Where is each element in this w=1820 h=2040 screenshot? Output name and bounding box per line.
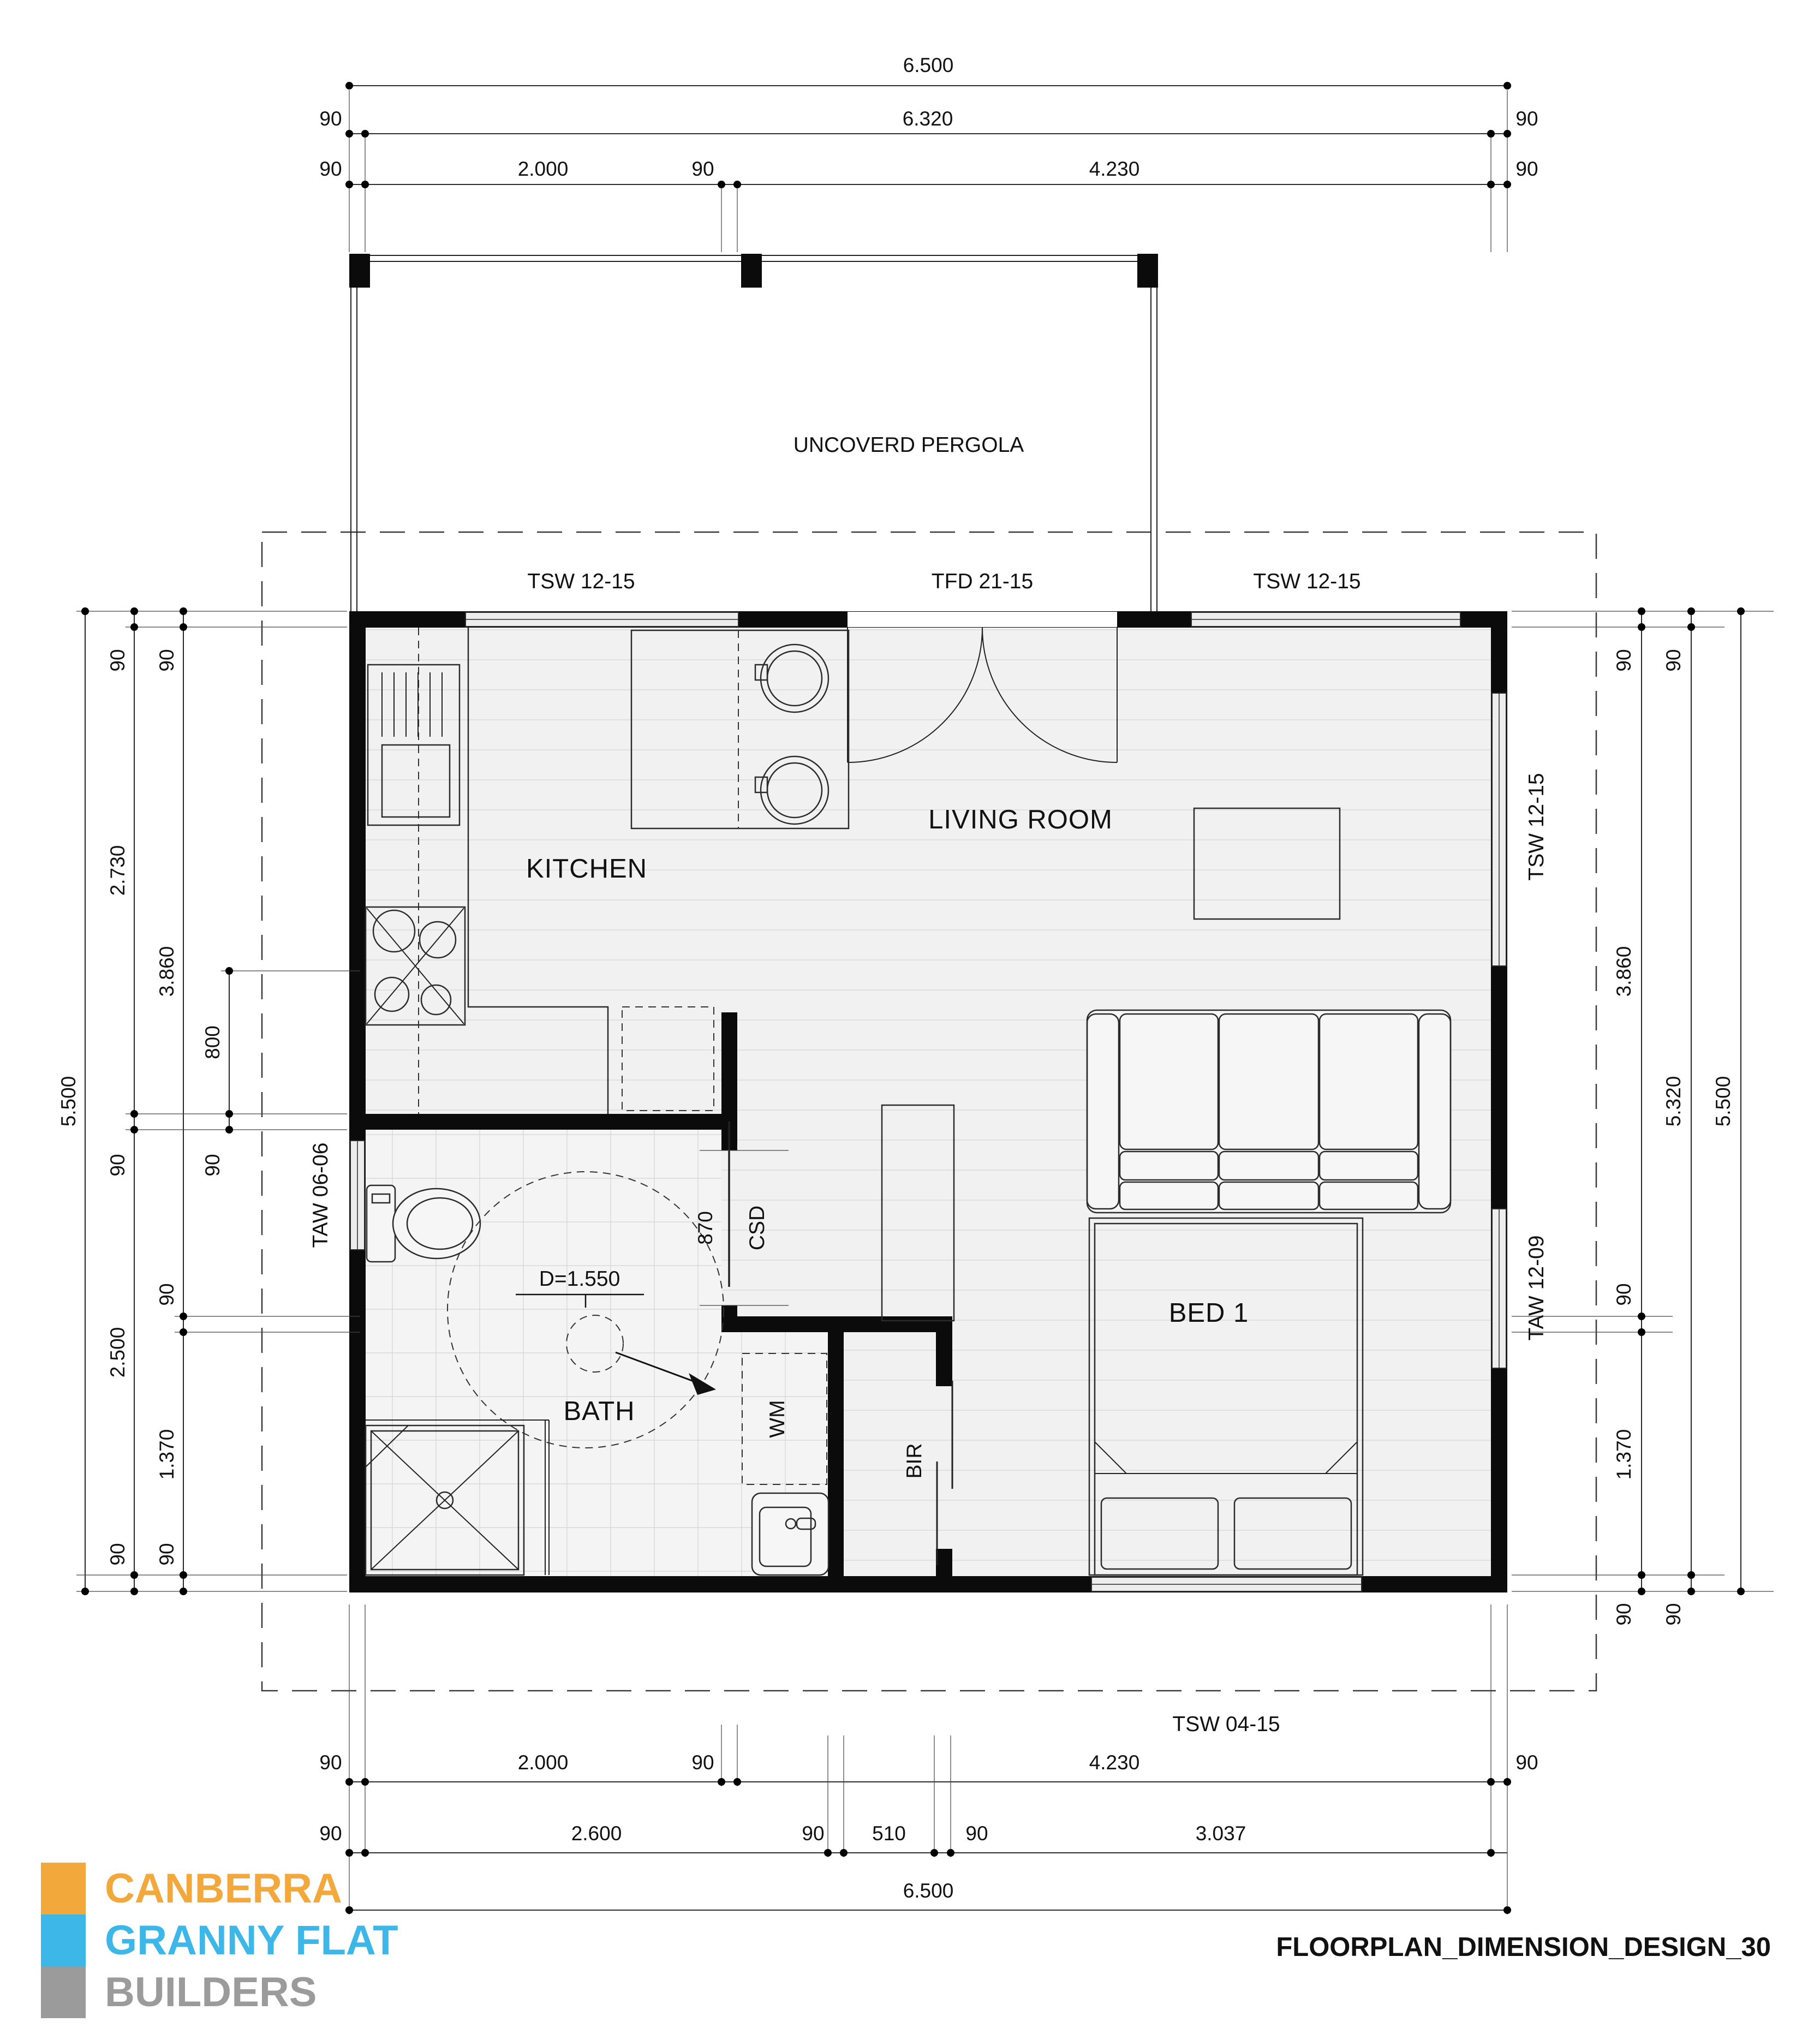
dim-left-total: 5.500 <box>57 1076 80 1127</box>
dim-label: 90 <box>691 158 714 180</box>
wall-bir-nib-top <box>936 1332 952 1386</box>
sofa <box>1087 1010 1451 1213</box>
logo-bar-orange <box>41 1863 86 1914</box>
dim-label: 90 <box>965 1822 988 1845</box>
dim-label: 4.230 <box>1089 1751 1140 1774</box>
dim-csd-opening: 870 <box>694 1211 717 1245</box>
dim-label: 4.230 <box>1089 158 1140 180</box>
wall-kitchen-bath <box>349 1114 721 1130</box>
dim-label: 90 <box>1662 1603 1685 1625</box>
dim-label: 90 <box>319 108 342 130</box>
dimensions-bottom: 90 2.000 90 4.230 90 90 2.600 90 510 90 … <box>319 1604 1538 1914</box>
dim-label: 510 <box>872 1822 906 1845</box>
dim-label: 90 <box>319 158 342 180</box>
dim-label: 90 <box>1515 1751 1538 1774</box>
sheet-title: FLOORPLAN_DIMENSION_DESIGN_30 <box>1276 1932 1771 1963</box>
dim-label: 90 <box>156 1543 178 1565</box>
logo-bar <box>41 1863 86 2018</box>
dim-right-total: 5.500 <box>1712 1076 1734 1127</box>
window-label-left: TAW 06-06 <box>309 1143 332 1248</box>
dim-label: 90 <box>106 1543 129 1565</box>
dim-label: 3.860 <box>1613 946 1635 997</box>
dim-label: 90 <box>802 1822 824 1845</box>
turning-circle-label: D=1.550 <box>539 1267 620 1291</box>
pergola <box>349 254 1158 611</box>
dim-label: 90 <box>1515 108 1538 130</box>
window-label-top-right: TSW 12-15 <box>1253 570 1360 593</box>
dim-label: 3.037 <box>1196 1822 1246 1845</box>
dim-label: 90 <box>106 649 129 671</box>
window-label-top-left: TSW 12-15 <box>527 570 635 593</box>
room-label-bath: BATH <box>563 1397 635 1426</box>
window-label-right-lower: TAW 12-09 <box>1525 1236 1548 1341</box>
dim-top-total: 6.500 <box>903 54 954 76</box>
dim-label: 2.730 <box>106 845 129 896</box>
dimensions-left: 5.500 90 2.730 90 2.500 90 90 3.860 90 1… <box>57 607 360 1595</box>
pergola-post <box>741 254 762 288</box>
company-logo: CANBERRA GRANNY FLAT BUILDERS <box>41 1863 398 2018</box>
dim-label: 90 <box>201 1154 224 1176</box>
pergola-post <box>1137 254 1158 288</box>
dim-label: 90 <box>691 1751 714 1774</box>
fixture-label-bir: BIR <box>903 1443 926 1478</box>
logo-bar-blue <box>41 1914 86 1966</box>
wall-bir-nib-bottom <box>936 1549 952 1580</box>
dim-label: 90 <box>319 1751 342 1774</box>
dim-label: 2.000 <box>518 1751 569 1774</box>
window-label-bottom: TSW 04-15 <box>1172 1713 1280 1736</box>
logo-text-canberra: CANBERRA <box>105 1863 398 1914</box>
fixture-label-csd: CSD <box>745 1206 769 1250</box>
door-label-tfd: TFD 21-15 <box>932 570 1033 593</box>
logo-bar-gray <box>41 1966 86 2018</box>
dim-label: 2.500 <box>106 1327 129 1378</box>
dim-label: 90 <box>319 1822 342 1845</box>
room-label-kitchen: KITCHEN <box>526 854 647 884</box>
dim-label: 90 <box>1613 649 1635 671</box>
dim-label: 90 <box>1613 1603 1635 1625</box>
dim-label: 90 <box>1613 1283 1635 1305</box>
wall-wm-divider <box>828 1332 844 1576</box>
dim-label: 1.370 <box>156 1429 178 1480</box>
pergola-post <box>349 254 370 288</box>
dim-label: 1.370 <box>1613 1429 1635 1480</box>
dim-label: 2.000 <box>518 158 569 180</box>
dim-bottom-total: 6.500 <box>903 1880 954 1902</box>
dim-label: 6.320 <box>903 108 953 130</box>
room-label-living: LIVING ROOM <box>928 805 1113 834</box>
logo-text-granny-flat: GRANNY FLAT <box>105 1914 398 1966</box>
wall-hall <box>721 1316 952 1332</box>
dim-label: 90 <box>156 1283 178 1305</box>
fixture-label-wm: WM <box>766 1400 789 1437</box>
dimensions-top: 6.500 90 6.320 90 90 2.000 90 4.230 90 <box>319 54 1538 252</box>
logo-text-builders: BUILDERS <box>105 1966 398 2018</box>
dim-label: 90 <box>156 649 178 671</box>
vanity <box>752 1493 828 1575</box>
dim-label: 90 <box>106 1154 129 1176</box>
dimensions-right: 90 3.860 90 1.370 90 90 5.320 90 5.500 <box>1512 607 1774 1626</box>
dim-label: 90 <box>1662 649 1685 671</box>
tfd-opening <box>848 612 1117 627</box>
window-label-right-upper: TSW 12-15 <box>1525 773 1548 880</box>
pergola-label: UNCOVERD PERGOLA <box>793 433 1024 457</box>
dim-label: 90 <box>1515 158 1538 180</box>
dim-label: 800 <box>201 1025 224 1059</box>
dim-label: 2.600 <box>571 1822 622 1845</box>
room-label-bed: BED 1 <box>1169 1298 1249 1328</box>
dim-label: 3.860 <box>156 946 178 997</box>
floorplan-sheet: 6.500 90 6.320 90 90 2.000 90 4.230 90 9… <box>0 0 1820 2040</box>
floorplan-drawing: 6.500 90 6.320 90 90 2.000 90 4.230 90 9… <box>0 0 1820 2040</box>
wall-left <box>349 611 366 1592</box>
toilet <box>367 1185 480 1262</box>
dim-label: 5.320 <box>1662 1076 1685 1127</box>
